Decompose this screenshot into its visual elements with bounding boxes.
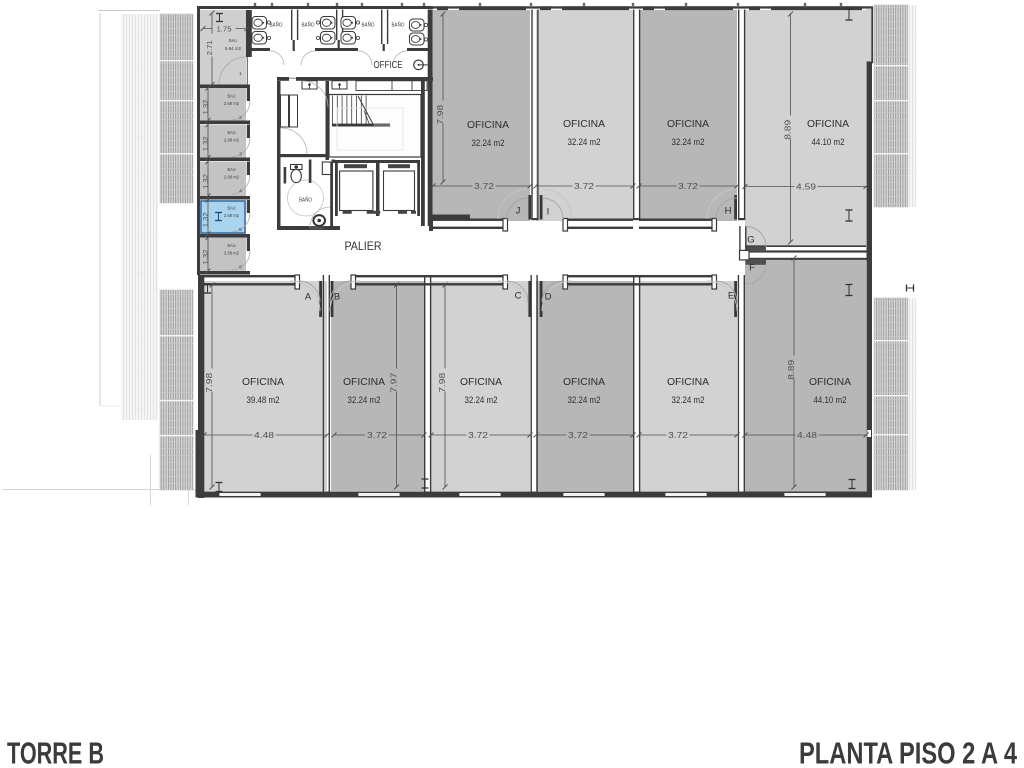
svg-text:B: B xyxy=(334,292,340,303)
svg-text:OFICINA: OFICINA xyxy=(343,376,385,388)
svg-text:1.32: 1.32 xyxy=(201,250,210,265)
svg-text:5.64 m2: 5.64 m2 xyxy=(225,46,241,52)
svg-text:2.68 m2: 2.68 m2 xyxy=(224,251,239,256)
svg-text:BAÑO: BAÑO xyxy=(299,197,312,204)
svg-text:2.68 m2: 2.68 m2 xyxy=(224,101,239,106)
svg-text:39.48 m2: 39.48 m2 xyxy=(247,395,280,405)
svg-text:OFICINA: OFICINA xyxy=(667,376,709,388)
svg-text:E: E xyxy=(728,291,734,302)
svg-text:32.24 m2: 32.24 m2 xyxy=(472,138,505,148)
svg-text:BAU: BAU xyxy=(228,94,236,99)
svg-text:2.71: 2.71 xyxy=(205,40,214,55)
svg-text:32.24 m2: 32.24 m2 xyxy=(465,395,498,405)
svg-text:32.24 m2: 32.24 m2 xyxy=(348,395,381,405)
svg-text:32.24 m2: 32.24 m2 xyxy=(672,395,705,405)
svg-text:2.68 m2: 2.68 m2 xyxy=(224,213,239,218)
svg-text:2.68 m2: 2.68 m2 xyxy=(224,175,239,180)
svg-text:BAU: BAU xyxy=(229,38,237,43)
svg-text:2: 2 xyxy=(239,115,242,121)
svg-text:44.10 m2: 44.10 m2 xyxy=(812,137,845,147)
svg-text:BAU: BAU xyxy=(228,167,236,172)
svg-text:BAU: BAU xyxy=(228,130,236,135)
svg-text:PLANTA PISO 2 A 4: PLANTA PISO 2 A 4 xyxy=(799,736,1018,768)
svg-text:BAU: BAU xyxy=(228,206,236,211)
svg-text:G: G xyxy=(747,235,754,246)
svg-text:1.32: 1.32 xyxy=(201,136,210,151)
svg-text:32.24 m2: 32.24 m2 xyxy=(672,137,705,147)
svg-text:OFICINA: OFICINA xyxy=(563,376,605,388)
svg-text:4.48: 4.48 xyxy=(254,430,274,440)
svg-text:7.98: 7.98 xyxy=(204,372,214,392)
svg-text:1.32: 1.32 xyxy=(201,100,210,115)
svg-text:5: 5 xyxy=(239,227,242,233)
svg-text:I: I xyxy=(547,207,550,218)
svg-text:A: A xyxy=(305,292,312,303)
svg-text:3.72: 3.72 xyxy=(468,430,488,440)
svg-text:7.97: 7.97 xyxy=(389,372,399,392)
svg-text:OFICINA: OFICINA xyxy=(809,376,851,388)
svg-text:D: D xyxy=(545,292,552,303)
svg-text:1.75: 1.75 xyxy=(217,24,232,33)
svg-text:OFICINA: OFICINA xyxy=(807,118,849,130)
svg-text:1: 1 xyxy=(239,71,242,77)
svg-text:OFICINA: OFICINA xyxy=(563,118,605,130)
svg-text:OFFICE: OFFICE xyxy=(374,60,403,71)
svg-text:7.98: 7.98 xyxy=(437,372,447,392)
svg-text:OFICINA: OFICINA xyxy=(667,118,709,130)
svg-text:BAÑO: BAÑO xyxy=(270,22,283,29)
svg-text:8.89: 8.89 xyxy=(783,119,793,139)
svg-text:3.72: 3.72 xyxy=(474,181,494,191)
svg-text:3.72: 3.72 xyxy=(367,430,387,440)
svg-text:BAÑO: BAÑO xyxy=(362,22,375,29)
svg-text:PALIER: PALIER xyxy=(345,241,382,253)
svg-text:4: 4 xyxy=(239,189,242,195)
svg-text:3: 3 xyxy=(239,152,242,158)
svg-text:7.98: 7.98 xyxy=(435,104,445,124)
svg-text:44.10 m2: 44.10 m2 xyxy=(814,395,847,405)
svg-text:3.72: 3.72 xyxy=(568,430,588,440)
svg-text:OFICINA: OFICINA xyxy=(467,119,509,131)
svg-text:1.32: 1.32 xyxy=(201,212,210,227)
svg-text:4.59: 4.59 xyxy=(796,181,816,191)
svg-text:OFICINA: OFICINA xyxy=(460,376,502,388)
svg-text:2.68 m2: 2.68 m2 xyxy=(224,138,239,143)
svg-text:BAU: BAU xyxy=(228,243,236,248)
svg-text:J: J xyxy=(516,206,521,217)
svg-text:TORRE B: TORRE B xyxy=(7,736,104,768)
svg-text:3.72: 3.72 xyxy=(574,181,594,191)
svg-text:32.24 m2: 32.24 m2 xyxy=(568,395,601,405)
svg-text:3.72: 3.72 xyxy=(668,430,688,440)
svg-text:C: C xyxy=(515,291,522,302)
svg-text:F: F xyxy=(749,263,755,274)
svg-text:8.89: 8.89 xyxy=(786,359,796,379)
svg-text:OFICINA: OFICINA xyxy=(242,376,284,388)
svg-text:6: 6 xyxy=(239,265,242,271)
svg-text:H: H xyxy=(725,206,732,217)
svg-text:3.72: 3.72 xyxy=(678,181,698,191)
svg-text:4.48: 4.48 xyxy=(797,430,817,440)
svg-text:BAÑO: BAÑO xyxy=(302,22,315,29)
svg-text:32.24 m2: 32.24 m2 xyxy=(568,137,601,147)
svg-text:1.32: 1.32 xyxy=(201,174,210,189)
svg-text:BAÑO: BAÑO xyxy=(392,22,405,29)
